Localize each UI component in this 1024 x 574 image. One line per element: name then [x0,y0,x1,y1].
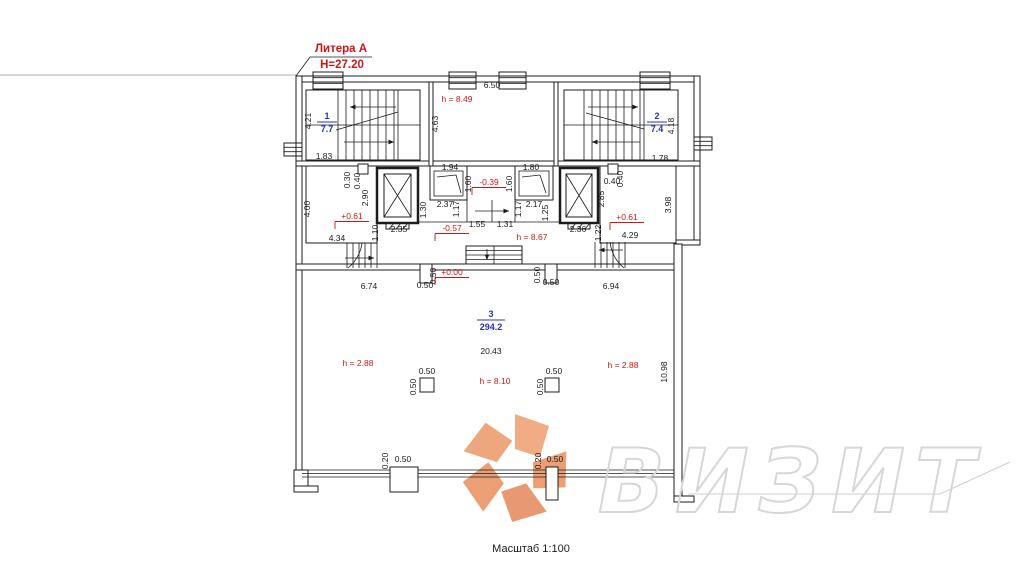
height-label: h = 2.88 [608,360,639,370]
room-area-label: 7.4 [651,124,664,134]
elevator-shaft-2-icon [560,168,598,229]
dim-label: 4.63 [430,115,440,132]
dim-label: 1.55 [469,219,486,229]
dim-label: 1.25 [540,204,550,221]
dim-label: 0.30 [342,171,352,188]
elev-label: -0.57 [442,223,462,233]
room-area-label: 294.2 [480,322,503,332]
dim-label: 0.20 [380,452,390,469]
dim-label: 0.50 [417,280,434,290]
column-right-icon [545,378,559,392]
dim-label: 6.94 [603,281,620,291]
dim-label: 0.50 [535,378,545,395]
dim-label: 1.30 [418,201,428,218]
floor-plan-sheet: ВИЗИТ Литера А Н=27.20 Масштаб 1:100 4.2… [0,0,1024,574]
dim-label: 1.94 [442,162,459,172]
room-number-label: 2 [654,111,659,121]
dim-label: 1.22 [593,224,603,241]
dim-label: 0.50 [408,378,418,395]
mullion-column-center [546,467,558,500]
dim-label: 1.31 [497,219,514,229]
elevation-mark-icon [435,234,469,242]
elevation-mark-icon [435,278,469,286]
elevator-shaft-1-icon [377,168,418,229]
dim-label: 1.83 [316,151,333,161]
height-label: h = 2.88 [343,358,374,368]
dim-label: 0.50 [395,454,412,464]
labels-layer: 4.211.83h = 8.494.636.501.941.804.181.78… [302,80,676,469]
scale-label: Масштаб 1:100 [492,543,570,555]
dim-label: 1.60 [504,175,514,192]
dim-label: 0.50 [419,366,436,376]
dim-label: 2.36 [570,224,587,234]
elevation-mark-icon [335,222,369,230]
dim-label: 0.50 [532,266,542,283]
dim-label: 2.85 [596,190,606,207]
watermark-text: ВИЗИТ [598,430,985,533]
dim-label: 0.50 [547,454,564,464]
room-number-label: 3 [488,309,493,319]
room-number-label: 1 [324,111,329,121]
wall-notch-left [358,164,368,174]
elevation-mark-icon [610,223,644,231]
dim-label: 4.00 [302,200,312,217]
height-label: h = 8.49 [442,94,473,104]
dim-label: 1.60 [463,175,473,192]
dim-label: 0.40 [615,170,625,187]
dim-label: 6.50 [484,80,501,90]
dim-label: 1.80 [523,162,540,172]
watermark-logo-icon [456,414,577,532]
dim-label: 2.90 [360,189,370,206]
dim-label: 4.18 [666,117,676,134]
dim-label: 1.10 [370,224,380,241]
dim-label: 0.40 [352,172,362,189]
height-label: h = 8.10 [480,376,511,386]
elev-label: -0.39 [479,177,499,187]
floor-plan-canvas: ВИЗИТ Литера А Н=27.20 Масштаб 1:100 4.2… [0,0,1024,574]
mullion-column-left [390,467,418,492]
dim-label: 1.17 [513,200,523,217]
dim-label: 0.50 [546,366,563,376]
dim-label: 1.17 [451,200,461,217]
dim-label: 6.74 [361,281,378,291]
height-label: h = 8.67 [517,232,548,242]
column-left-icon [420,378,434,392]
elev-label: +0.61 [616,212,638,222]
dim-label: 4.29 [622,230,639,240]
dim-label: 3.98 [663,196,673,213]
dim-label: 1.78 [652,153,669,163]
room-area-label: 7.7 [321,124,334,134]
elev-label: +0.00 [441,267,463,277]
building-height-label: Н=27.20 [320,59,364,71]
stair-center [466,246,522,264]
dim-label: 20.43 [480,346,502,356]
litera-label: Литера А [315,43,367,55]
dim-label: 2.35 [391,224,408,234]
dim-label: 10.98 [659,361,669,383]
dim-label: 4.21 [303,112,313,129]
dim-label: 4.34 [329,233,346,243]
elev-label: +0.61 [341,211,363,221]
dim-label: 0.50 [543,277,560,287]
elevation-mark-icon [472,188,506,196]
dim-label: 0.20 [533,452,543,469]
